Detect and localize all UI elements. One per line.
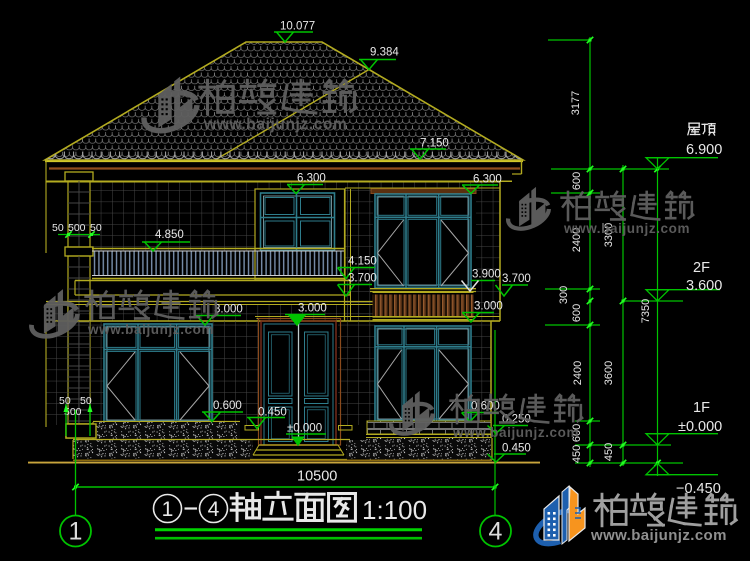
svg-text:7.150: 7.150	[420, 138, 449, 150]
svg-text:6.300: 6.300	[297, 173, 326, 185]
svg-text:4: 4	[208, 498, 220, 521]
svg-text:6.900: 6.900	[686, 142, 722, 158]
svg-text:−0.450: −0.450	[676, 481, 721, 497]
svg-text:0.450: 0.450	[258, 407, 287, 419]
svg-text:www.baijunjz.com: www.baijunjz.com	[203, 116, 347, 133]
svg-text:www.baijunjz.com: www.baijunjz.com	[590, 527, 727, 544]
svg-text:4: 4	[489, 518, 503, 546]
svg-text:6.300: 6.300	[473, 174, 502, 186]
svg-text:50: 50	[52, 222, 64, 234]
svg-text:450: 450	[571, 445, 583, 463]
svg-text:www.baijunjz.com: www.baijunjz.com	[87, 322, 214, 337]
svg-text:3.000: 3.000	[474, 301, 503, 313]
svg-text:1: 1	[69, 518, 83, 546]
svg-text:0.450: 0.450	[502, 443, 531, 455]
svg-text:3.700: 3.700	[348, 273, 377, 285]
svg-text:600: 600	[571, 172, 583, 190]
svg-text:7350: 7350	[640, 299, 652, 323]
svg-text:3177: 3177	[570, 91, 582, 115]
svg-text:3.700: 3.700	[502, 273, 531, 285]
svg-text:1:100: 1:100	[362, 495, 427, 525]
svg-text:3.900: 3.900	[472, 269, 501, 281]
svg-text:300: 300	[558, 286, 570, 304]
svg-text:10.077: 10.077	[280, 21, 315, 33]
svg-text:50: 50	[90, 222, 102, 234]
svg-text:1: 1	[162, 498, 174, 521]
svg-text:600: 600	[571, 304, 583, 322]
svg-text:0.600: 0.600	[213, 400, 242, 412]
svg-text:3.000: 3.000	[298, 303, 327, 315]
svg-text:1F: 1F	[693, 400, 710, 416]
svg-text:www.baijunjz.com: www.baijunjz.com	[452, 425, 579, 440]
svg-text:2F: 2F	[693, 260, 710, 276]
svg-text:3600: 3600	[603, 361, 615, 385]
svg-text:3.600: 3.600	[686, 278, 722, 294]
svg-text:450: 450	[603, 443, 615, 461]
svg-text:±0.000: ±0.000	[678, 419, 722, 435]
svg-text:±0.000: ±0.000	[287, 423, 322, 435]
svg-text:4.150: 4.150	[348, 256, 377, 268]
svg-text:10500: 10500	[297, 469, 337, 485]
svg-text:9.384: 9.384	[370, 47, 399, 59]
svg-text:4.850: 4.850	[155, 229, 184, 241]
svg-text:2400: 2400	[572, 361, 584, 385]
svg-text:www.baijunjz.com: www.baijunjz.com	[563, 221, 690, 236]
